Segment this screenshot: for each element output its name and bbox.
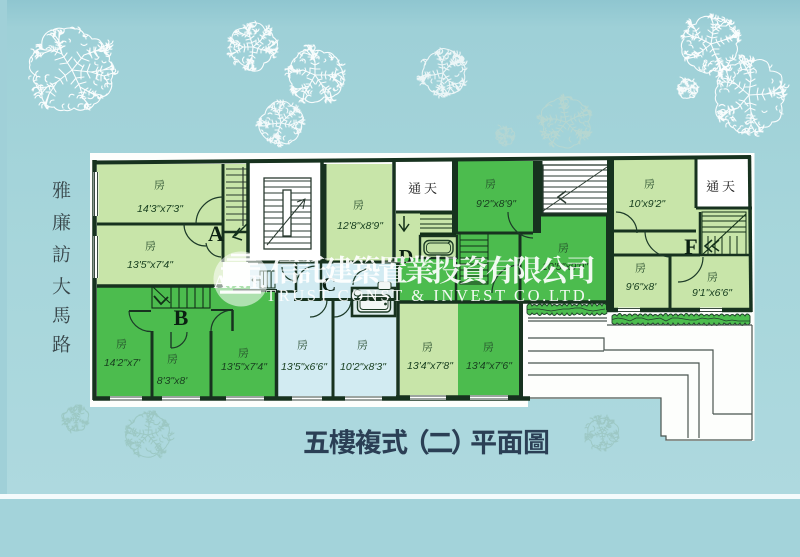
svg-text:9'6"x8': 9'6"x8': [626, 281, 658, 293]
svg-text:13'5"x7'4": 13'5"x7'4": [127, 259, 174, 271]
svg-text:A.I.T.: A.I.T.: [214, 272, 267, 293]
svg-text:8'3"x8': 8'3"x8': [157, 375, 189, 387]
svg-text:14'2"x7': 14'2"x7': [104, 357, 141, 369]
svg-text:A: A: [208, 221, 224, 246]
svg-text:13'5"x6'6": 13'5"x6'6": [281, 361, 328, 373]
svg-text:12'8"x8'9": 12'8"x8'9": [337, 220, 384, 232]
svg-text:B: B: [174, 305, 189, 330]
svg-text:13'5"x7'4": 13'5"x7'4": [221, 361, 268, 373]
svg-text:13'4"x7'6": 13'4"x7'6": [466, 360, 513, 372]
svg-text:13'4"x7'8": 13'4"x7'8": [407, 360, 454, 372]
svg-text:10'x9'2": 10'x9'2": [629, 198, 667, 210]
svg-text:TRUST CONST & INVEST CO.LT: TRUST CONST & INVEST CO.LTD.: [266, 286, 594, 305]
svg-text:9'2"x8'9": 9'2"x8'9": [476, 198, 517, 210]
svg-text:10'2"x8'3": 10'2"x8'3": [340, 361, 387, 373]
svg-text:9'1"x6'6": 9'1"x6'6": [692, 287, 733, 299]
svg-text:F: F: [684, 234, 697, 259]
svg-text:14'3"x7'3": 14'3"x7'3": [137, 203, 184, 215]
